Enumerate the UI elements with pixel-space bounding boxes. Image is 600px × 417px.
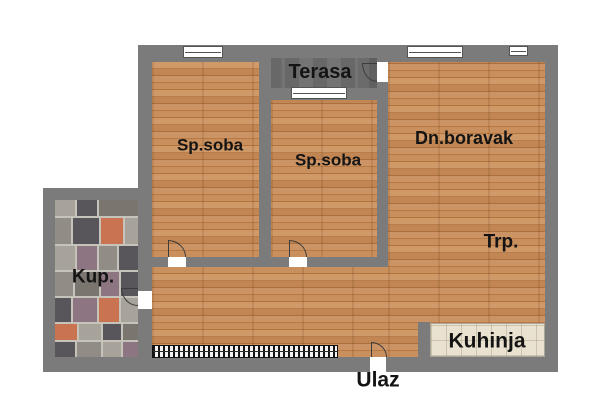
wall-bedroom1-right: [259, 62, 271, 257]
door-bedroom1: [168, 257, 186, 267]
label-terrace: Terasa: [288, 62, 351, 82]
door-bedroom2: [289, 257, 307, 267]
floor-plan: Terasa Sp.soba Sp.soba Dn.boravak Trp. K…: [0, 0, 600, 417]
door-terrace: [377, 62, 388, 82]
bathroom-tile: [73, 218, 99, 244]
hallway-floor: [152, 267, 388, 357]
bathroom-tile: [79, 324, 101, 340]
bathroom-tile: [123, 342, 138, 357]
door-bathroom: [138, 291, 152, 309]
bathroom-tile: [55, 200, 75, 216]
wall-left: [138, 45, 152, 372]
bathroom-tile: [55, 324, 77, 340]
bathroom-tile: [99, 298, 119, 322]
bedroom1-floor: [152, 62, 259, 257]
wall-annex-left: [43, 188, 55, 372]
bathroom-tile: [55, 298, 71, 322]
label-bathroom: Kup.: [72, 268, 114, 287]
label-kitchen: Kuhinja: [449, 331, 526, 352]
wall-kitchen-stub: [418, 322, 430, 357]
wall-annex-top: [43, 188, 138, 200]
label-bedroom2: Sp.soba: [295, 152, 361, 169]
bathroom-tile: [77, 342, 101, 357]
window-living-large: [407, 46, 463, 58]
window-bedroom1: [183, 46, 223, 58]
bathroom-tile: [55, 342, 75, 357]
label-bedroom1: Sp.soba: [177, 137, 243, 154]
living-room-floor: [388, 62, 545, 357]
wall-bottom: [43, 357, 558, 372]
bathroom-tile: [55, 218, 71, 244]
bathroom-tile: [101, 218, 123, 244]
bathroom-tile: [103, 342, 121, 357]
bathroom-tile: [55, 272, 73, 296]
label-living: Dn.boravak: [415, 129, 513, 147]
wall-right: [545, 45, 558, 372]
bathroom-tile: [77, 200, 97, 216]
bathroom-tile: [103, 324, 121, 340]
bathroom-tile: [99, 200, 138, 216]
label-entrance: Ulaz: [356, 370, 399, 391]
label-dining: Trp.: [484, 233, 519, 252]
window-bedroom2-terrace: [291, 87, 347, 99]
window-living-small: [509, 46, 528, 56]
bedroom2-floor: [271, 100, 377, 257]
bathroom-tile: [73, 298, 97, 322]
bathroom-tile: [123, 324, 138, 340]
bathroom-tile: [125, 218, 138, 244]
radiator: [152, 345, 338, 358]
bathroom-tile: [119, 246, 138, 270]
